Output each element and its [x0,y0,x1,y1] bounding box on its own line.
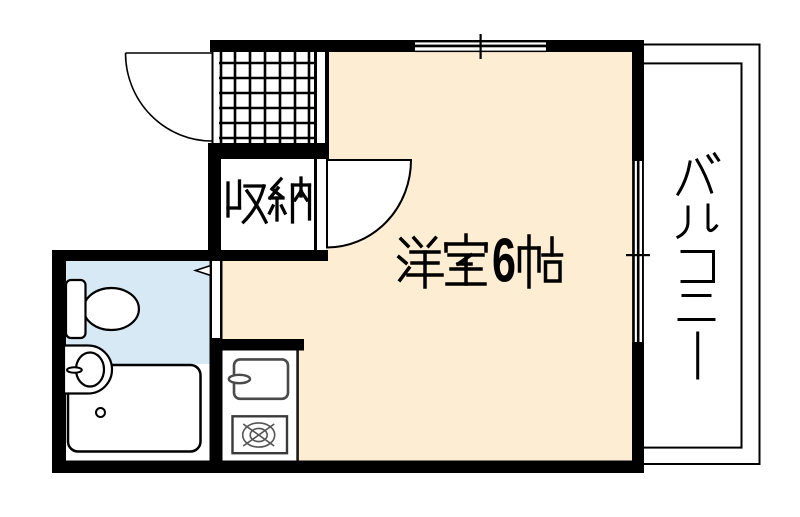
svg-text:6: 6 [492,227,516,296]
